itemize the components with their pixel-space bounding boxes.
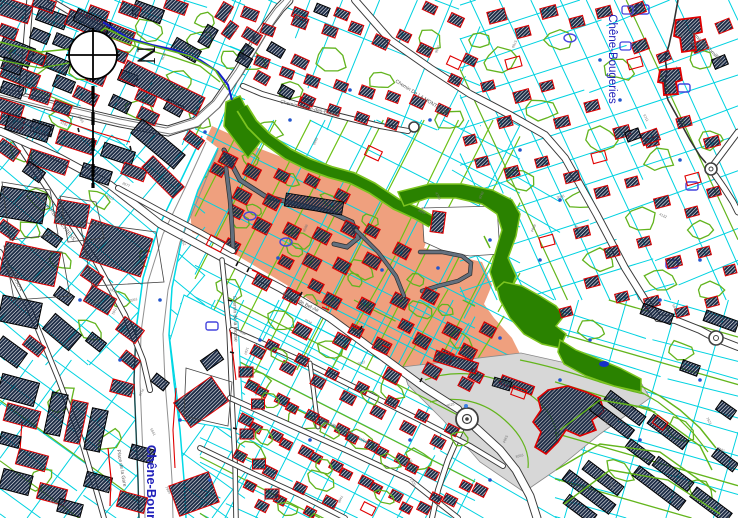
svg-text:Chêne-Bougeries: Chêne-Bougeries (606, 14, 618, 104)
svg-text:Chêne-Bourg: Chêne-Bourg (144, 445, 159, 518)
svg-text:N: N (132, 46, 161, 65)
